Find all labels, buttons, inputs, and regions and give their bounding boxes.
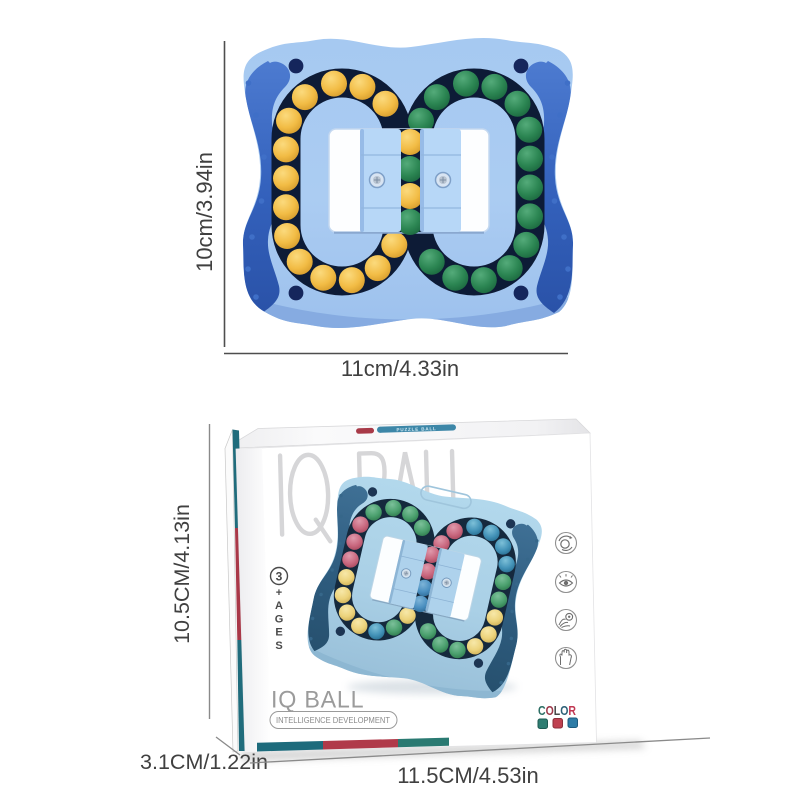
svg-text:10.5CM/4.13in: 10.5CM/4.13in [170,504,194,644]
svg-text:10cm/3.94in: 10cm/3.94in [192,152,217,272]
svg-text:IQ BALL: IQ BALL [271,687,364,713]
svg-text:3: 3 [276,570,283,584]
svg-text:11cm/4.33in: 11cm/4.33in [341,356,459,381]
svg-text:3.1CM/1.22in: 3.1CM/1.22in [140,750,268,774]
svg-text:11.5CM/4.53in: 11.5CM/4.53in [397,763,538,788]
svg-text:INTELLIGENCE DEVELOPMENT: INTELLIGENCE DEVELOPMENT [276,716,390,725]
svg-text:COLOR: COLOR [538,704,576,718]
svg-text:+AGES: +AGES [275,587,284,652]
